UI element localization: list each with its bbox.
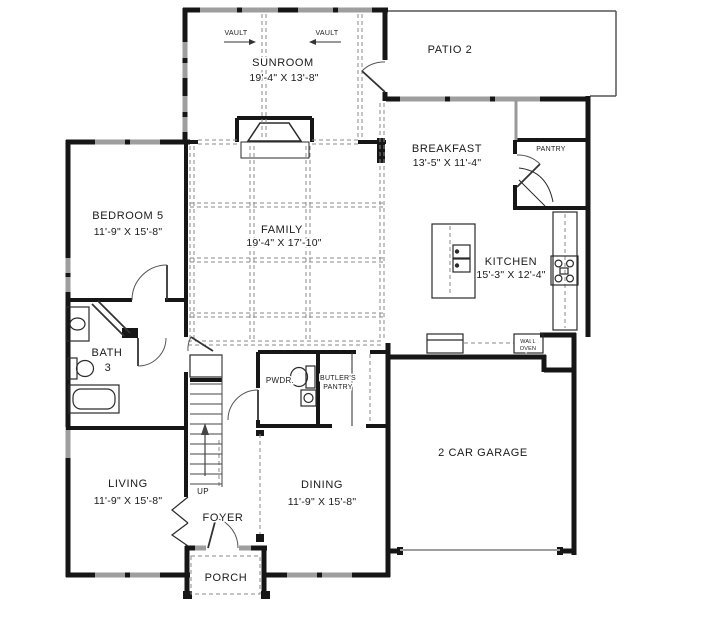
room-label-breakfast: BREAKFAST <box>412 143 482 155</box>
doors <box>92 62 540 548</box>
room-label-living: LIVING <box>108 478 148 490</box>
room-dims-kitchen: 15'-3" X 12'-4" <box>476 269 545 281</box>
room-label-bath3-line1: BATH <box>92 347 123 359</box>
room-label-foyer: FOYER <box>203 512 244 524</box>
kitchen-counter-bottom <box>427 334 463 353</box>
vault-right-label: VAULT <box>315 30 338 37</box>
room-dims-bedroom5: 11'-9" X 15'-8" <box>94 226 163 238</box>
powder-sink <box>301 390 316 406</box>
wall-stubs <box>122 138 563 599</box>
burner <box>555 260 562 267</box>
room-dims-living: 11'-9" X 15'-8" <box>94 495 163 507</box>
room-label-kitchen: KITCHEN <box>485 256 537 268</box>
staircase <box>190 355 222 487</box>
wall-oven-label-line2: OVEN <box>520 346 536 352</box>
room-label-garage: 2 CAR GARAGE <box>438 447 528 459</box>
room-label-butlers-line2: PANTRY <box>323 384 353 391</box>
pantry-corner-shelf <box>519 168 553 206</box>
vault-arrows <box>224 39 341 45</box>
room-label-patio: PATIO 2 <box>428 44 473 56</box>
room-label-pantry: PANTRY <box>536 146 566 153</box>
room-dims-family: 19'-4" X 17'-10" <box>246 237 321 249</box>
room-label-family: FAMILY <box>261 224 303 236</box>
wall-oven-label-line1: WALL <box>520 339 536 345</box>
door-swing-arcs <box>132 62 540 548</box>
stairs-up-label: UP <box>197 487 209 496</box>
bath-sink <box>70 318 85 330</box>
room-label-butlers-line1: BUTLER'S <box>320 375 356 382</box>
vault-arrow-right <box>249 39 256 45</box>
burner <box>567 275 574 282</box>
vault-arrow-left <box>309 39 316 45</box>
interior-walls <box>66 118 588 497</box>
bath-toilet-bowl <box>77 361 94 377</box>
room-label-dining: DINING <box>301 479 343 491</box>
patio-outline <box>386 11 616 96</box>
room-label-bath3-line2: 3 <box>105 362 112 374</box>
room-label-sunroom: SUNROOM <box>252 57 314 69</box>
labels: VAULT VAULT SUNROOM 19'-4" X 13'-8" PATI… <box>92 30 566 584</box>
floor-plan-page: VAULT VAULT SUNROOM 19'-4" X 13'-8" PATI… <box>0 0 704 618</box>
cased-opening-chevrons <box>172 497 188 546</box>
burner <box>555 275 562 282</box>
room-dims-breakfast: 13'-5" X 11'-4" <box>413 157 482 169</box>
window-mullion-ticks <box>68 10 495 575</box>
stair-closet <box>190 355 222 377</box>
fireplace <box>241 123 309 158</box>
room-label-porch: PORCH <box>205 572 248 584</box>
room-label-powder: PWDR. <box>266 376 294 385</box>
burner <box>567 260 574 267</box>
room-dims-dining: 11'-9" X 15'-8" <box>288 496 357 508</box>
floor-plan-drawing: VAULT VAULT SUNROOM 19'-4" X 13'-8" PATI… <box>0 0 704 618</box>
vault-left-label: VAULT <box>224 30 247 37</box>
room-dims-sunroom: 19'-4" X 13'-8" <box>249 72 318 84</box>
room-label-bedroom5: BEDROOM 5 <box>92 210 163 222</box>
